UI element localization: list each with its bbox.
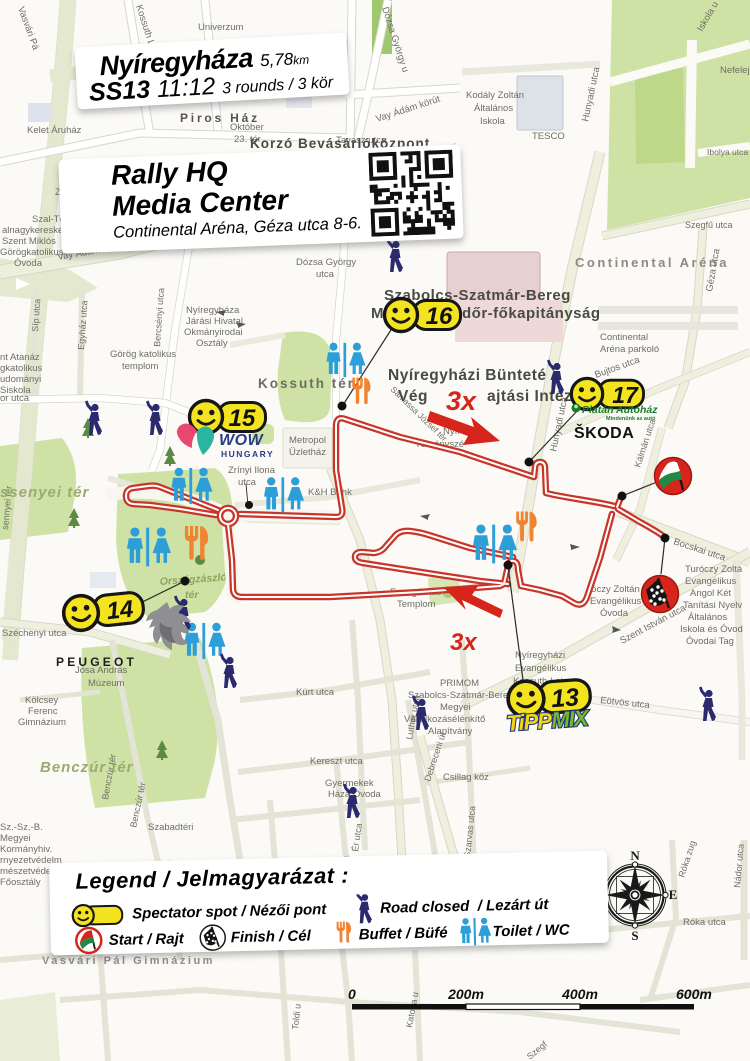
svg-text:Nyíregyháza: Nyíregyháza [186,305,240,316]
svg-text:400m: 400m [561,986,598,1002]
svg-text:Kereszt utca: Kereszt utca [310,756,364,767]
svg-text:Gimnázium: Gimnázium [18,717,66,728]
svg-text:0: 0 [348,986,356,1002]
svg-text:Piros Ház: Piros Ház [180,111,260,125]
svg-text:Univerzum: Univerzum [198,22,243,33]
svg-text:udományi: udományi [0,374,41,385]
svg-text:TESCO: TESCO [532,131,565,142]
svg-text:Múzeum: Múzeum [88,678,125,689]
svg-text:Szegfű utca: Szegfű utca [685,220,733,230]
svg-text:E: E [669,887,678,902]
svg-text:róczy Zoltán: róczy Zoltán [588,584,640,595]
svg-text:Continental Aréna: Continental Aréna [575,255,729,270]
svg-text:utca: utca [238,477,257,488]
svg-text:Osztály: Osztály [196,338,228,349]
svg-text:Nefelejcs: Nefelejcs [720,65,750,76]
svg-text:Szabadtéri: Szabadtéri [148,822,193,833]
svg-text:Iskola és Óvod: Iskola és Óvod [680,624,743,635]
svg-text:Görög katolikus: Görög katolikus [110,349,176,360]
svg-text:dőr-főkapitányság: dőr-főkapitányság [462,305,601,322]
svg-text:Mindenünk az autó: Mindenünk az autó [606,416,656,422]
svg-text:Kölcsey: Kölcsey [25,695,59,706]
svg-text:M: M [371,305,384,322]
svg-text:N: N [630,848,640,863]
svg-text:Gyermekek: Gyermekek [325,778,374,789]
svg-text:Megyei: Megyei [440,702,471,713]
svg-text:nt Atanáz: nt Atanáz [0,352,40,363]
svg-text:600m: 600m [676,986,712,1002]
svg-text:TiPP: TiPP [506,708,553,736]
svg-text:Benczúr tér: Benczúr tér [40,759,134,776]
svg-text:HUNGARY: HUNGARY [221,449,274,459]
svg-text:Iskola: Iskola [480,116,506,127]
svg-text:16: 16 [426,303,453,330]
svg-text:MIX: MIX [550,705,590,733]
svg-text:K&H Bank: K&H Bank [308,487,352,498]
svg-text:Csillag köz: Csillag köz [443,772,489,783]
svg-text:utca: utca [316,269,335,280]
svg-text:Óvoda: Óvoda [600,608,629,619]
svg-text:Ferenc: Ferenc [28,706,58,717]
svg-text:Metropol: Metropol [289,435,326,446]
svg-text:14: 14 [105,596,134,626]
svg-text:S: S [631,928,638,943]
svg-text:Kossuth tér: Kossuth tér [258,376,355,391]
svg-text:Szabolcs-Szatmár-Bereg: Szabolcs-Szatmár-Bereg [408,690,514,701]
svg-text:Evangélikus: Evangélikus [515,663,566,674]
svg-text:gkatolikus: gkatolikus [0,363,42,374]
svg-text:templom: templom [122,361,159,372]
svg-text:Aréna parkoló: Aréna parkoló [600,344,659,355]
svg-text:Platán Autóház: Platán Autóház [582,404,658,416]
svg-text:3x: 3x [450,629,478,656]
svg-text:Tanítási Nyelv: Tanítási Nyelv [683,600,742,611]
svg-text:Zrínyi Ilona: Zrínyi Ilona [228,465,276,476]
svg-text:Általános: Általános [474,103,513,114]
svg-text:Continental: Continental [600,332,648,343]
svg-text:Alapítvány: Alapítvány [428,726,473,737]
svg-text:Evangélikus: Evangélikus [685,576,736,587]
svg-text:Okmányirodai: Okmányirodai [184,327,243,338]
svg-text:Nyíregyházi Bünteté: Nyíregyházi Bünteté [388,367,547,384]
svg-text:Kodály Zoltán: Kodály Zoltán [466,90,524,101]
svg-text:Főosztály: Főosztály [0,877,41,888]
svg-text:Vasvári Pál Gimnázium: Vasvári Pál Gimnázium [42,955,215,967]
svg-text:Óvodai Tag: Óvodai Tag [686,636,734,647]
svg-text:Kormányhiv.: Kormányhiv. [0,844,52,855]
svg-text:Kelet Áruház: Kelet Áruház [27,125,82,136]
svg-text:Járási Hivatal: Járási Hivatal [186,316,243,327]
svg-text:Templom: Templom [397,599,436,610]
svg-text:WOW: WOW [219,432,265,449]
svg-text:Turóczy Zoltá: Turóczy Zoltá [685,564,743,575]
svg-text:Dózsa György: Dózsa György [296,257,356,268]
svg-text:ajtási Intéze: ajtási Intéze [487,388,581,405]
svg-text:Sz.-Sz.-B.: Sz.-Sz.-B. [0,822,43,833]
svg-text:Vég: Vég [398,388,428,405]
svg-text:ssenyei tér: ssenyei tér [0,484,90,501]
svg-text:PEUGEOT: PEUGEOT [56,655,137,669]
svg-text:or utca: or utca [0,393,30,404]
svg-text:Evangélikus: Evangélikus [590,596,641,607]
svg-text:Görögkatolikus: Görögkatolikus [0,247,64,258]
svg-text:Üzletház: Üzletház [289,447,326,458]
svg-text:Kürt utca: Kürt utca [296,687,335,698]
svg-text:15: 15 [229,405,256,432]
svg-text:ŠKODA: ŠKODA [574,423,634,442]
svg-text:Általános: Általános [688,612,727,623]
svg-text:Nyíregyházi: Nyíregyházi [515,650,565,661]
svg-text:Megyei: Megyei [0,833,31,844]
svg-text:PRIMOM: PRIMOM [440,678,479,689]
svg-text:Angol Két: Angol Két [690,588,732,599]
svg-text:Ibolya utca: Ibolya utca [707,147,748,157]
svg-text:Széchenyi utca: Széchenyi utca [2,628,67,639]
svg-text:tér: tér [185,589,199,601]
svg-text:3x: 3x [446,386,477,416]
svg-text:Óvoda: Óvoda [14,258,43,269]
svg-text:Szent Miklós: Szent Miklós [2,236,56,247]
svg-text:200m: 200m [447,986,484,1002]
svg-text:Róka utca: Róka utca [683,917,726,928]
